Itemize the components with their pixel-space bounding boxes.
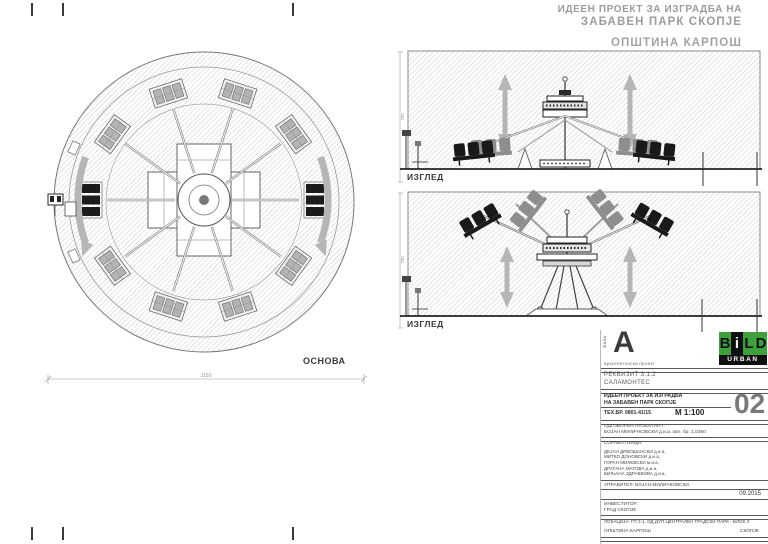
header-line-2: ЗАБАВЕН ПАРК СКОПЈЕ <box>558 16 742 28</box>
elevation-top-title: ИЗГЛЕД <box>407 172 444 182</box>
fold-mark <box>62 3 64 16</box>
collaborators-list: ДЕЈАН ДРВОШАНСКИ д.и.а, МИТКО ДОНОВСКИ д… <box>604 449 666 478</box>
location-text: ЛОКАЦИЈА: ГП 3.1, ОД ДУП ЦЕНТРАЛЕН ГРАДС… <box>604 519 749 524</box>
project-title-line-1: ИДЕЕН ПРОЕКТ ЗА ИЗГРАДБА <box>604 393 682 399</box>
municipality-text: ОПШТИНА КАРПОШ <box>604 529 651 534</box>
investor-name: ГРАД СКОПЈЕ <box>604 508 636 513</box>
company-logo: B i L D URBAN <box>719 332 767 365</box>
elevation-bottom-title: ИЗГЛЕД <box>407 319 444 329</box>
phase-label: ФАЗА <box>602 335 607 348</box>
plan-title: ОСНОВА <box>303 356 346 366</box>
elevation-bottom-drawing: 700 <box>398 188 764 336</box>
sheet-header: ИДЕЕН ПРОЕКТ ЗА ИЗГРАДБА НА ЗАБАВЕН ПАРК… <box>558 4 742 49</box>
scale-value: М 1:100 <box>675 408 704 417</box>
header-line-1: ИДЕЕН ПРОЕКТ ЗА ИЗГРАДБА НА <box>558 4 742 15</box>
collaborators-label: СОРАБОТНИЦИ: <box>604 441 642 446</box>
city-text: СКОПЈЕ <box>740 529 759 534</box>
title-block: ФАЗА A архитектонски проект B i L D URBA… <box>600 330 768 544</box>
investor-label: ИНВЕСТИТОР: <box>604 502 638 507</box>
responsible-name: БОЈАН МИЛИЧКОВСКИ д.и.а. овл. бр. 1.0360 <box>604 430 706 435</box>
plan-drawing: 1150 <box>28 26 384 386</box>
collaborator: БИЉАНА ЗДРАВКОВА д.и.а, <box>604 471 666 477</box>
sheet-number: 02 <box>734 388 765 420</box>
logo-letter-b: B <box>719 332 731 355</box>
logo-letter-i: i <box>731 332 743 355</box>
fold-mark <box>62 527 64 540</box>
logo-letter-d: D <box>755 332 767 355</box>
date-value: 09.2015 <box>739 491 761 497</box>
fold-mark <box>31 527 33 540</box>
drawing-sheet: { "header": { "line1": "ИДЕЕН ПРОЕКТ ЗА … <box>0 0 768 543</box>
phase-value: A <box>613 326 635 360</box>
manager-name: УПРАВИТЕЛ: БОЈАН МИЛИЧКОВСКИ <box>604 483 689 488</box>
logo-name: URBAN <box>719 355 767 365</box>
elevation-bottom-height-value: 700 <box>400 256 405 264</box>
fold-mark <box>31 3 33 16</box>
elevation-top-height-value: 700 <box>400 113 405 121</box>
logo-letter-l: L <box>743 332 755 355</box>
plan-width-value: 1150 <box>201 373 212 379</box>
elevation-top-drawing: 700 <box>398 46 764 188</box>
fold-mark <box>292 527 294 540</box>
fold-mark <box>292 3 294 16</box>
responsible-label: ОДГОВОРЕН ПРОЕКТАНТ: <box>604 424 665 429</box>
project-title-line-2: НА ЗАБАВЕН ПАРК СКОПЈЕ <box>604 400 676 406</box>
item-name: САЛАМОНТЕС <box>604 380 650 386</box>
phase-subtitle: архитектонски проект <box>604 361 655 366</box>
item-code: РЕКВИЗИТ 3.1.2 <box>604 372 656 378</box>
tech-number: ТЕХ.БР. 0801-41/15 <box>604 410 651 416</box>
